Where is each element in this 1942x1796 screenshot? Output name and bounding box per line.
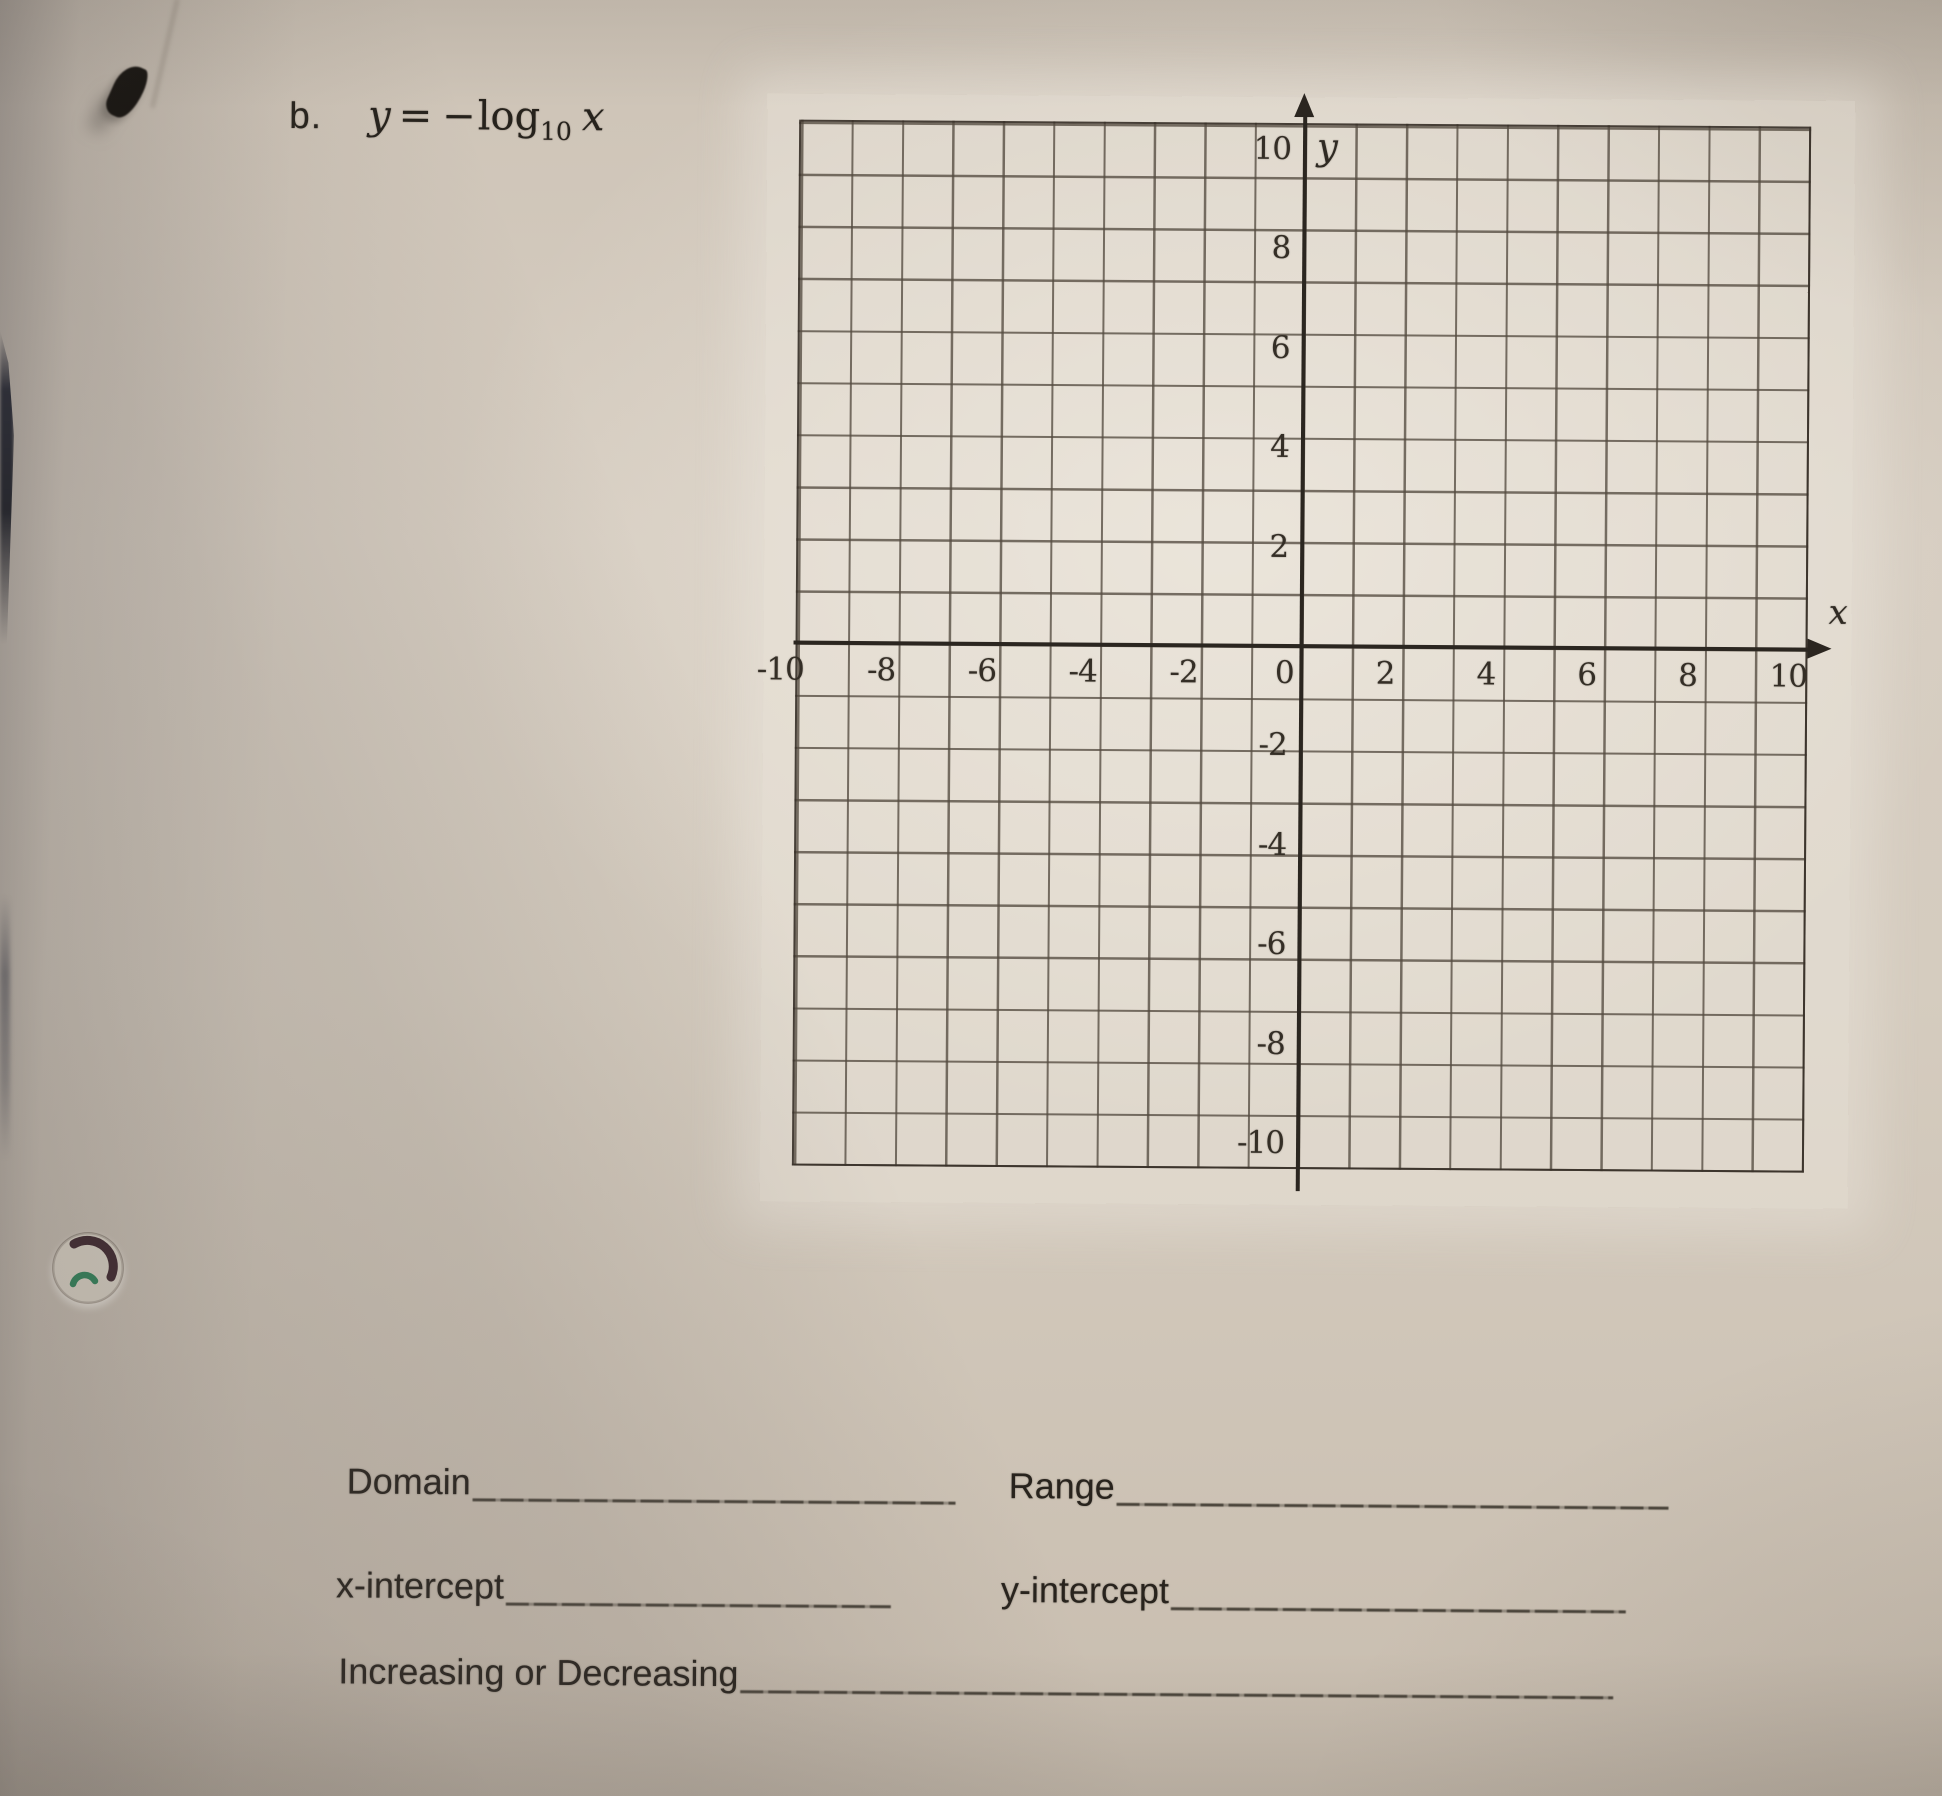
y-tick-label: 10	[1211, 127, 1291, 170]
x-tick-label: -4	[1048, 650, 1118, 692]
x-tick-label: -6	[947, 650, 1017, 692]
field-increasing-blank	[740, 1690, 1613, 1699]
equation-log-base: 10	[540, 117, 572, 146]
field-x-intercept-blank	[506, 1602, 891, 1608]
x-tick-label: -10	[745, 648, 815, 690]
y-tick-label: 4	[1209, 426, 1289, 469]
y-tick-label: -8	[1205, 1022, 1285, 1065]
field-x-intercept-label: x-intercept	[336, 1564, 504, 1607]
problem-statement: b. y=−log10x	[289, 92, 605, 146]
x-tick-label: -2	[1148, 651, 1218, 693]
field-range-blank	[1117, 1502, 1669, 1509]
field-increasing-label: Increasing or Decreasing	[338, 1650, 738, 1695]
field-increasing-or-decreasing: Increasing or Decreasing	[338, 1650, 1613, 1701]
x-tick-label: 10	[1753, 655, 1823, 697]
problem-equation: y=−log10x	[368, 93, 605, 147]
y-tick-label: -2	[1207, 724, 1287, 767]
x-tick-label: 0	[1249, 652, 1319, 694]
hole-punch-graphic	[52, 1232, 124, 1304]
problem-letter: b.	[289, 95, 322, 137]
field-domain-label: Domain	[347, 1460, 471, 1503]
field-domain: Domain	[347, 1460, 956, 1506]
equation-y: y	[368, 93, 391, 139]
equation-log: log	[478, 93, 541, 139]
field-x-intercept: x-intercept	[336, 1564, 891, 1610]
hole-punch	[52, 1232, 124, 1304]
x-tick-label: 2	[1350, 652, 1420, 694]
equation-equals: =	[399, 93, 433, 139]
y-tick-label: 6	[1209, 326, 1289, 369]
field-range: Range	[1009, 1465, 1669, 1512]
field-range-label: Range	[1009, 1465, 1115, 1508]
worksheet-sheet: b. y=−log10x y x -10-8-6-4-20246810 1086…	[0, 0, 1942, 1796]
field-y-intercept-label: y-intercept	[1001, 1569, 1169, 1612]
y-tick-label: -6	[1205, 923, 1285, 966]
worksheet-photo: b. y=−log10x y x -10-8-6-4-20246810 1086…	[0, 0, 1942, 1796]
equation-x: x	[582, 94, 605, 140]
coordinate-grid: y x -10-8-6-4-20246810 108642-2-4-6-8-10	[792, 120, 1811, 1173]
y-axis-label: y	[1317, 125, 1338, 168]
equation-minus: −	[442, 93, 476, 139]
dark-edge-sliver	[0, 895, 10, 1160]
y-tick-label: -4	[1206, 823, 1286, 866]
x-tick-label: 6	[1552, 654, 1622, 696]
x-tick-label: 8	[1652, 655, 1722, 697]
y-axis-arrow-icon	[1294, 93, 1314, 117]
y-tick-label: 8	[1210, 227, 1290, 270]
x-tick-label: -8	[846, 649, 916, 691]
y-tick-label: 2	[1208, 525, 1288, 568]
field-y-intercept: y-intercept	[1001, 1569, 1626, 1615]
x-tick-label: 4	[1451, 653, 1521, 695]
field-y-intercept-blank	[1171, 1607, 1626, 1614]
x-axis-label: x	[1828, 593, 1847, 633]
y-tick-label: -10	[1204, 1121, 1284, 1164]
field-domain-blank	[473, 1498, 956, 1505]
